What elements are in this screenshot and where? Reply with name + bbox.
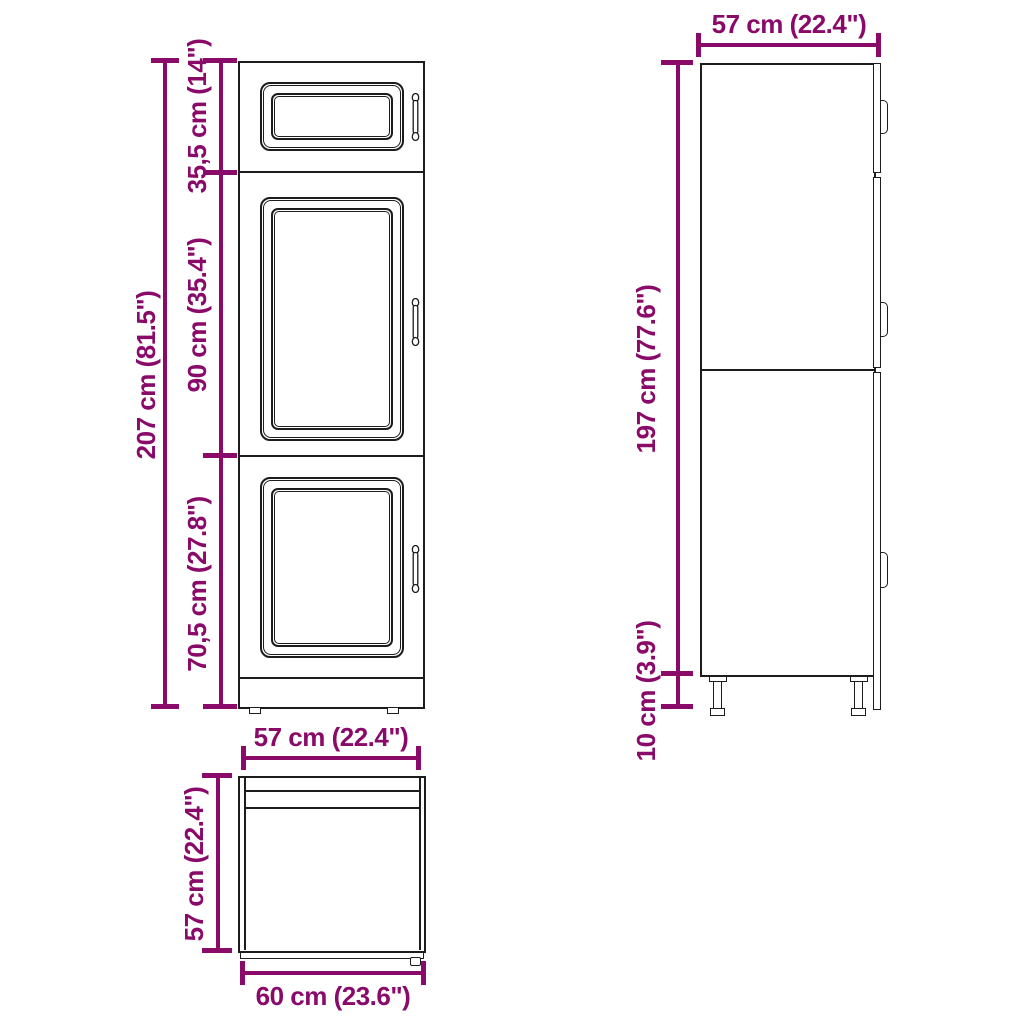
- dimension-tick: [876, 33, 881, 57]
- top-view-front-edge: [245, 790, 420, 792]
- dimension-line-top-width: [243, 756, 420, 760]
- front-top-door: [260, 82, 404, 151]
- dimension-line-depth: [216, 776, 220, 952]
- top-view-inner-line: [244, 778, 246, 950]
- top-view-bottom-strip: [240, 952, 424, 959]
- dimension-line-sections: [219, 61, 223, 708]
- dimension-tick: [240, 961, 245, 985]
- side-handle: [880, 302, 888, 337]
- top-view-inner-line: [419, 778, 421, 950]
- door-panel-inner: [274, 211, 390, 427]
- door-panel: [271, 208, 393, 430]
- top-view-front-edge: [245, 807, 420, 809]
- dim-label-total-height: 207 cm (81.5"): [133, 291, 159, 460]
- dim-label-bottom-width: 60 cm (23.6"): [256, 983, 411, 1009]
- dimension-tick: [241, 746, 246, 770]
- dim-label-depth: 57 cm (22.4"): [181, 787, 207, 942]
- leg-stem: [854, 681, 863, 709]
- dimension-tick: [661, 60, 693, 65]
- dim-label-top-width: 57 cm (22.4"): [254, 724, 409, 750]
- dimension-tick: [416, 746, 421, 770]
- dimension-tick: [661, 704, 693, 709]
- dim-label-middle-section: 90 cm (35.4"): [184, 238, 210, 393]
- dim-label-bottom-section: 70,5 cm (27.8"): [184, 496, 210, 671]
- dimension-line-total-height: [163, 61, 167, 708]
- leg-foot: [710, 708, 725, 716]
- side-leg: [709, 676, 727, 721]
- door-panel: [271, 93, 393, 140]
- top-view-foot: [410, 957, 421, 966]
- dim-label-top-section: 35,5 cm (14"): [184, 39, 210, 194]
- side-door-edge: [873, 177, 881, 368]
- top-view-body: [238, 776, 426, 953]
- front-plinth-line: [239, 677, 424, 679]
- front-foot: [387, 708, 399, 714]
- dimension-tick: [202, 773, 232, 778]
- leg-stem: [713, 681, 722, 709]
- front-foot: [249, 708, 261, 714]
- dimension-tick: [151, 704, 179, 709]
- side-door-edge: [873, 372, 881, 710]
- dimension-tick: [203, 453, 237, 458]
- door-panel-inner: [274, 96, 390, 137]
- door-handle: [410, 298, 421, 346]
- door-panel-inner: [274, 491, 390, 644]
- dimension-tick: [696, 33, 701, 57]
- front-middle-door: [260, 197, 404, 441]
- cabinet-dimension-diagram: 207 cm (81.5") 35,5 cm (14") 90 cm (35.4…: [0, 0, 1024, 1024]
- dimension-line-body-height: [676, 63, 680, 675]
- dimension-line-bottom-width: [242, 971, 426, 975]
- dimension-tick: [421, 961, 426, 985]
- dimension-tick: [203, 704, 237, 709]
- dim-label-leg-height: 10 cm (3.9"): [633, 621, 659, 762]
- front-section-divider-1: [239, 171, 424, 173]
- front-section-divider-2: [239, 455, 424, 457]
- side-handle: [880, 552, 888, 588]
- side-leg: [850, 676, 868, 721]
- side-handle: [880, 100, 888, 134]
- dimension-tick: [151, 58, 179, 63]
- dim-label-body-height: 197 cm (77.6"): [633, 285, 659, 454]
- door-handle: [410, 93, 421, 141]
- dimension-line-side-width: [698, 43, 879, 47]
- door-panel: [271, 488, 393, 647]
- side-divider-line: [701, 369, 874, 371]
- door-handle: [410, 545, 421, 593]
- front-bottom-door: [260, 477, 404, 658]
- dimension-tick: [202, 948, 232, 953]
- dim-label-side-width: 57 cm (22.4"): [712, 11, 867, 37]
- leg-foot: [851, 708, 866, 716]
